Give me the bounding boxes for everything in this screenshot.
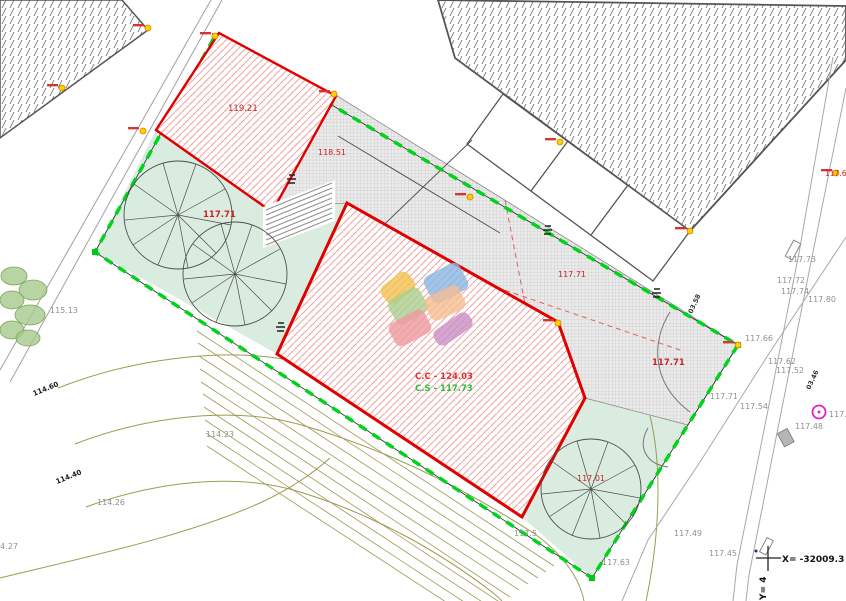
elev-115-13: 115.13 (50, 306, 78, 315)
survey-point-icon (735, 342, 741, 348)
point-dot (755, 550, 758, 553)
coord-x-label: X= -32009.3 (782, 555, 844, 565)
pipe-03-46: 03.46 (805, 368, 821, 390)
elev-117-54: 117.54 (740, 402, 768, 411)
mint-elev-117-71: 117.71 (203, 210, 236, 220)
point-id-text (723, 341, 734, 343)
utility-box-symbol (777, 428, 794, 446)
cad-drawing-canvas[interactable]: 115.13114.23114.26114.27114.60114.40119.… (0, 0, 846, 601)
survey-point-icon (59, 85, 65, 91)
point-id-text (319, 90, 330, 92)
point-id-text (543, 319, 554, 321)
elev-117-45: 117.45 (709, 549, 737, 558)
point-id-text (47, 84, 58, 86)
terrace-area: 118.51 (318, 148, 346, 157)
point-id-text (675, 227, 686, 229)
building1-area: 119.21 (228, 104, 258, 114)
elev-114-23: 114.23 (206, 430, 234, 439)
survey-point-icon (555, 320, 561, 326)
manhole-symbol (813, 406, 826, 419)
elev-117-74: 117.74 (781, 287, 809, 296)
elev-117-66: 117.66 (745, 334, 773, 343)
elev-114-27: 114.27 (0, 542, 18, 551)
contour-114-40: 114.40 (55, 468, 83, 486)
survey-point-icon (687, 228, 693, 234)
survey-point-icon (145, 25, 151, 31)
contour-114-60: 114.60 (32, 380, 60, 398)
elev-117-5-bottom: 117.5 (514, 529, 537, 538)
survey-point-icon (140, 128, 146, 134)
coordinate-cross (755, 546, 782, 571)
point-id-text (128, 127, 139, 129)
elev-117-48: 117.48 (795, 422, 823, 431)
point-id-text (133, 24, 144, 26)
elev-117-63: 117.63 (602, 558, 630, 567)
bush (0, 267, 47, 346)
elev-114-26: 114.26 (97, 498, 125, 507)
survey-point-icon (331, 91, 337, 97)
survey-point-icon (467, 194, 473, 200)
ground-elevation: C.S - 117.73 (415, 384, 473, 394)
survey-point-icon (212, 33, 218, 39)
survey-point-icon (557, 139, 563, 145)
elev-117-49: 117.49 (674, 529, 702, 538)
elev-117-62: 117.62 (768, 357, 796, 366)
elev-117-72: 117.72 (777, 276, 805, 285)
point-id-text (455, 193, 466, 195)
elev-117-5-right: 117.5 (829, 410, 846, 419)
tree-elev-117-01: 117.01 (577, 474, 605, 483)
terrace-elev-117-71: 117.71 (558, 270, 586, 279)
elev-117-71-gray: 117.71 (710, 392, 738, 401)
building-top-left (0, 0, 148, 138)
right-edge-117-6: 117.6 (825, 169, 846, 178)
elev-117-52: 117.52 (776, 366, 804, 375)
right-elev-117-71-red: 117.71 (652, 358, 685, 368)
ridge-elevation: C.C - 124.03 (415, 372, 473, 382)
coord-y-label: Y= 4 (759, 577, 769, 601)
point-id-text (545, 138, 556, 140)
point-id-text (200, 32, 211, 34)
pipe-03-58: 03.58 (687, 292, 703, 314)
elev-117-73: 117.73 (788, 255, 816, 264)
elev-117-80: 117.80 (808, 295, 836, 304)
